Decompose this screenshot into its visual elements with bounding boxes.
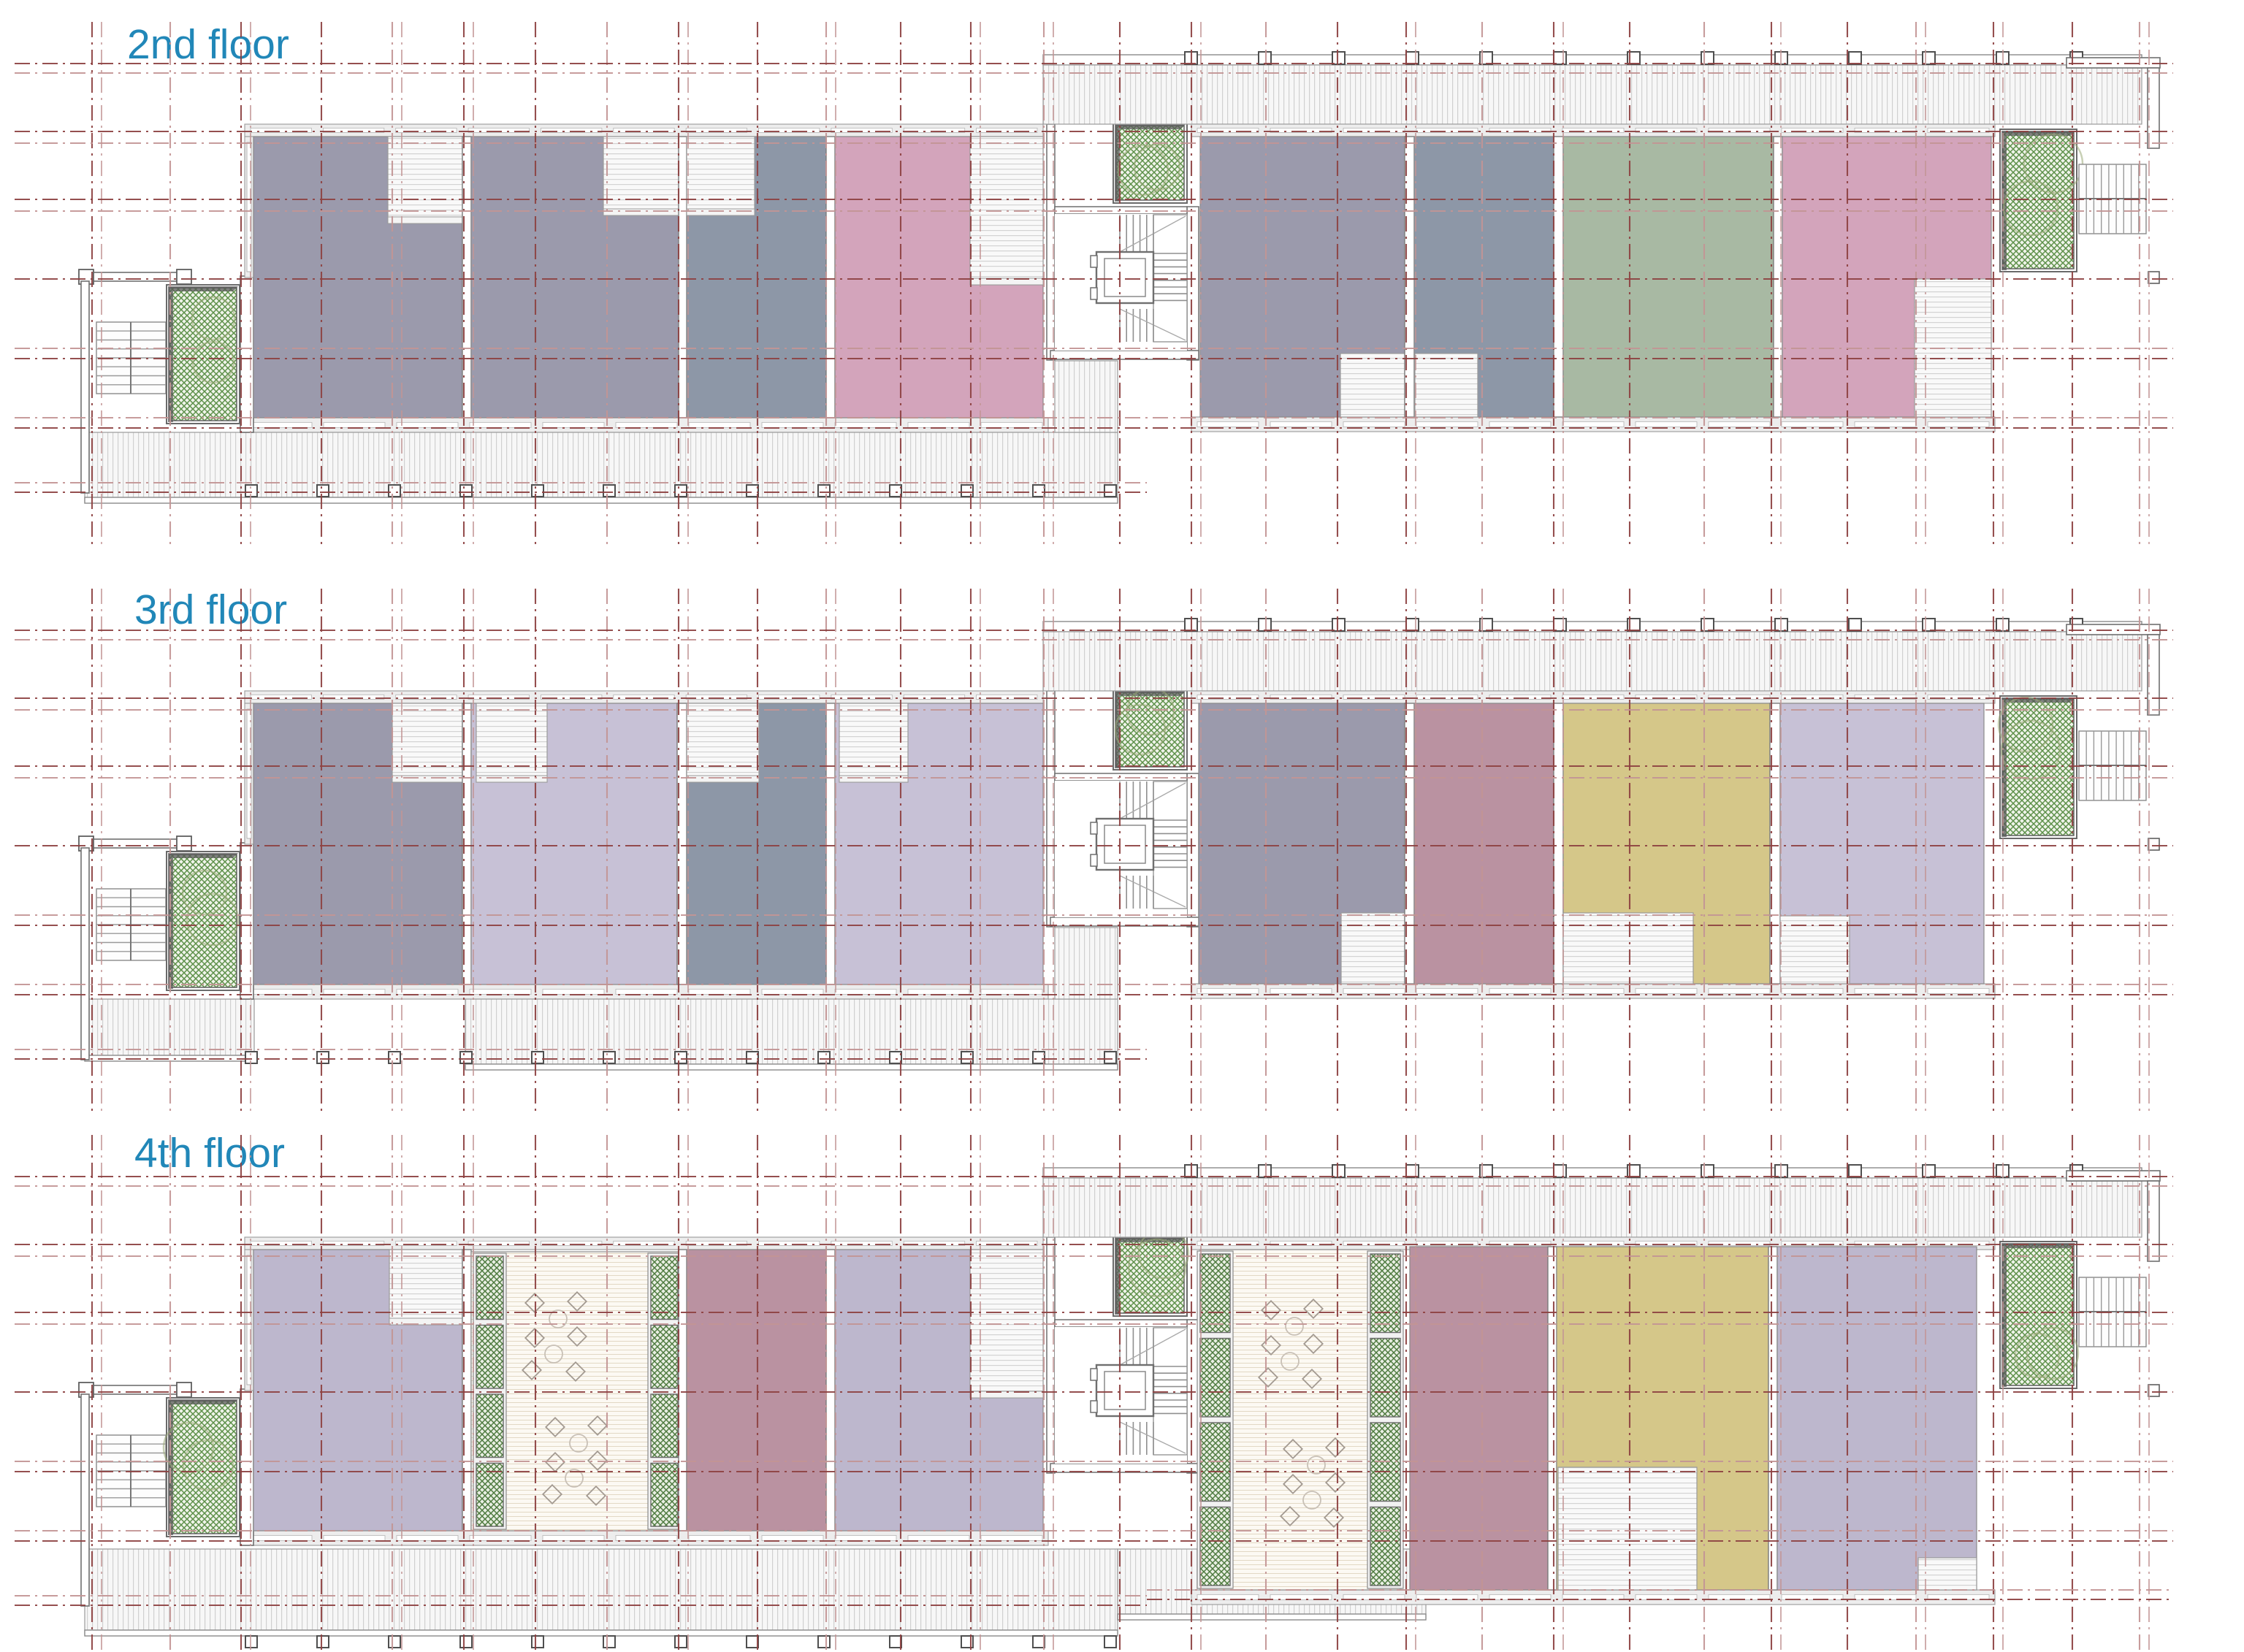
svg-text:2nd floor: 2nd floor xyxy=(127,21,289,68)
svg-text:3rd floor: 3rd floor xyxy=(134,586,287,633)
svg-text:4th floor: 4th floor xyxy=(134,1130,285,1177)
